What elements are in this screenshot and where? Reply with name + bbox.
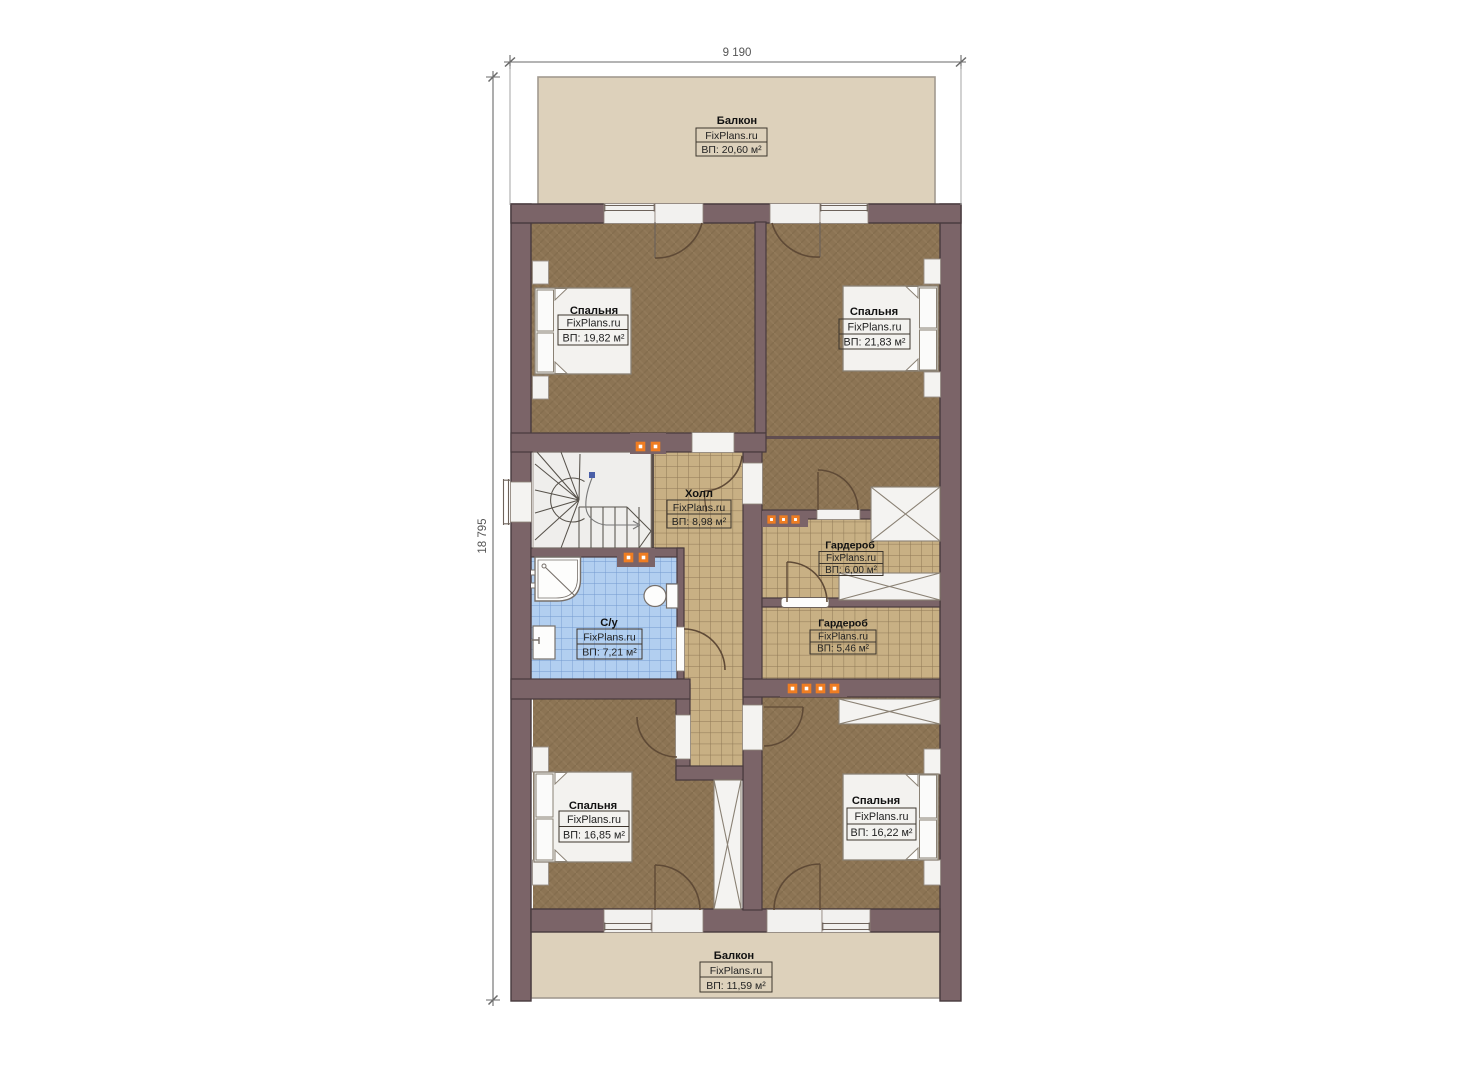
svg-text:9 190: 9 190 xyxy=(723,47,752,59)
svg-text:ВП: 5,46 м²: ВП: 5,46 м² xyxy=(817,644,870,655)
svg-text:FixPlans.ru: FixPlans.ru xyxy=(826,553,876,564)
svg-text:С/у: С/у xyxy=(600,617,618,629)
svg-text:Спальня: Спальня xyxy=(850,306,898,318)
svg-text:FixPlans.ru: FixPlans.ru xyxy=(710,965,763,977)
svg-text:ВП: 7,21 м²: ВП: 7,21 м² xyxy=(582,647,637,659)
svg-text:FixPlans.ru: FixPlans.ru xyxy=(818,632,868,643)
svg-text:ВП: 8,98 м²: ВП: 8,98 м² xyxy=(672,516,727,528)
svg-text:ВП: 21,83 м²: ВП: 21,83 м² xyxy=(844,337,906,349)
svg-text:Гардероб: Гардероб xyxy=(825,540,875,552)
svg-text:FixPlans.ru: FixPlans.ru xyxy=(673,502,726,514)
svg-text:FixPlans.ru: FixPlans.ru xyxy=(705,130,758,142)
svg-text:ВП: 6,00 м²: ВП: 6,00 м² xyxy=(825,565,878,576)
svg-text:ВП: 20,60 м²: ВП: 20,60 м² xyxy=(701,144,762,156)
svg-text:Спальня: Спальня xyxy=(852,795,900,807)
svg-text:Холл: Холл xyxy=(685,488,713,500)
svg-text:ВП: 19,82 м²: ВП: 19,82 м² xyxy=(563,333,625,345)
svg-text:Балкон: Балкон xyxy=(714,950,754,962)
svg-text:FixPlans.ru: FixPlans.ru xyxy=(847,322,901,334)
svg-text:18 795: 18 795 xyxy=(477,518,489,553)
svg-text:FixPlans.ru: FixPlans.ru xyxy=(583,632,636,644)
svg-text:Спальня: Спальня xyxy=(569,800,617,812)
svg-text:ВП: 16,85 м²: ВП: 16,85 м² xyxy=(563,830,625,842)
svg-text:FixPlans.ru: FixPlans.ru xyxy=(566,318,620,330)
svg-text:ВП: 16,22 м²: ВП: 16,22 м² xyxy=(851,827,913,839)
svg-text:Балкон: Балкон xyxy=(717,115,757,127)
svg-text:ВП: 11,59 м²: ВП: 11,59 м² xyxy=(706,980,766,992)
svg-text:FixPlans.ru: FixPlans.ru xyxy=(567,814,621,826)
svg-text:Гардероб: Гардероб xyxy=(818,618,868,630)
svg-text:FixPlans.ru: FixPlans.ru xyxy=(854,811,908,823)
